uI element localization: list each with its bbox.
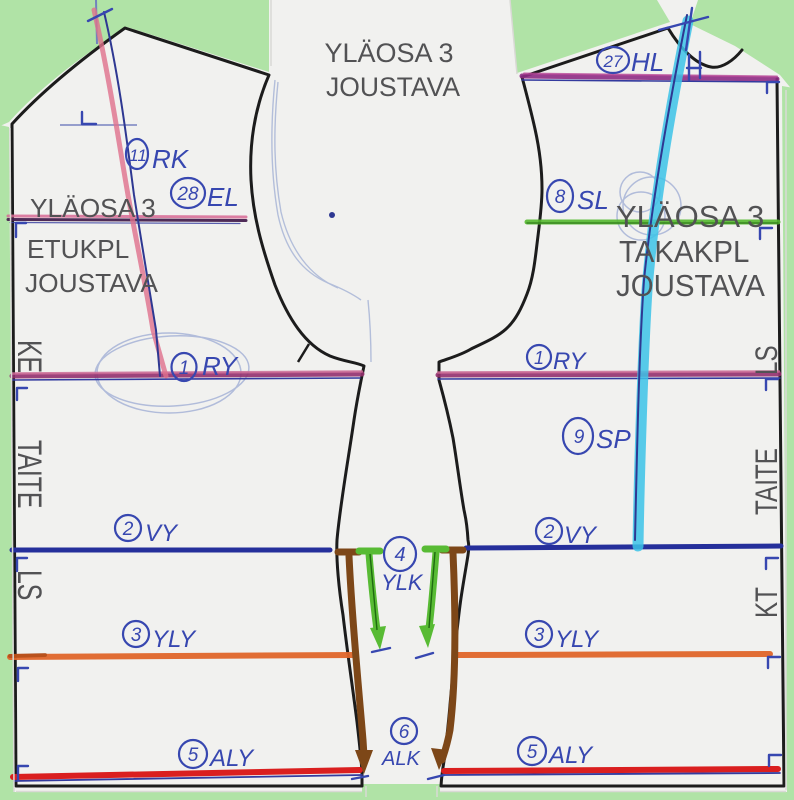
svg-text:ALK: ALK xyxy=(381,748,421,770)
svg-text:VY: VY xyxy=(145,520,179,547)
svg-text:JOUSTAVA: JOUSTAVA xyxy=(616,269,766,303)
svg-text:1: 1 xyxy=(179,358,190,379)
svg-text:2: 2 xyxy=(122,519,134,540)
svg-text:28: 28 xyxy=(176,184,199,205)
svg-text:EL: EL xyxy=(207,182,239,212)
svg-text:JOUSTAVA: JOUSTAVA xyxy=(326,72,460,102)
svg-text:RK: RK xyxy=(152,144,190,174)
svg-text:SL: SL xyxy=(577,185,609,215)
svg-text:YLY: YLY xyxy=(555,626,600,653)
svg-text:KE: KE xyxy=(10,340,48,373)
svg-text:5: 5 xyxy=(527,742,538,763)
svg-text:YLÄOSA 3: YLÄOSA 3 xyxy=(324,38,453,68)
svg-text:KT: KT xyxy=(749,587,784,618)
svg-text:HL: HL xyxy=(631,47,664,77)
svg-text:ALY: ALY xyxy=(547,742,594,769)
svg-text:YLÄOSA 3: YLÄOSA 3 xyxy=(30,193,156,223)
svg-text:RY: RY xyxy=(202,351,239,381)
svg-text:JOUSTAVA: JOUSTAVA xyxy=(25,268,158,298)
svg-text:TAITE: TAITE xyxy=(10,440,48,508)
svg-text:6: 6 xyxy=(399,722,410,743)
svg-text:5: 5 xyxy=(188,745,199,766)
svg-text:3: 3 xyxy=(131,625,142,646)
svg-text:ALY: ALY xyxy=(208,745,255,772)
svg-text:YLY: YLY xyxy=(152,626,197,653)
svg-text:8: 8 xyxy=(555,187,566,208)
svg-text:1: 1 xyxy=(534,348,544,368)
svg-text:TAKAKPL: TAKAKPL xyxy=(619,235,749,269)
svg-text:LS: LS xyxy=(749,345,784,375)
svg-text:YLK: YLK xyxy=(381,570,424,595)
svg-text:LS: LS xyxy=(10,570,48,600)
svg-text:TAITE: TAITE xyxy=(749,448,784,515)
svg-text:RY: RY xyxy=(553,348,587,375)
svg-text:VY: VY xyxy=(564,522,598,549)
svg-text:2: 2 xyxy=(543,522,555,543)
svg-text:3: 3 xyxy=(534,625,545,646)
svg-text:27: 27 xyxy=(603,52,623,71)
svg-text:YLÄOSA 3: YLÄOSA 3 xyxy=(616,199,764,234)
svg-text:4: 4 xyxy=(394,544,405,566)
svg-text:11: 11 xyxy=(129,146,147,165)
svg-text:ETUKPL: ETUKPL xyxy=(27,234,129,264)
svg-text:9: 9 xyxy=(574,427,585,448)
svg-text:SP: SP xyxy=(596,424,631,454)
